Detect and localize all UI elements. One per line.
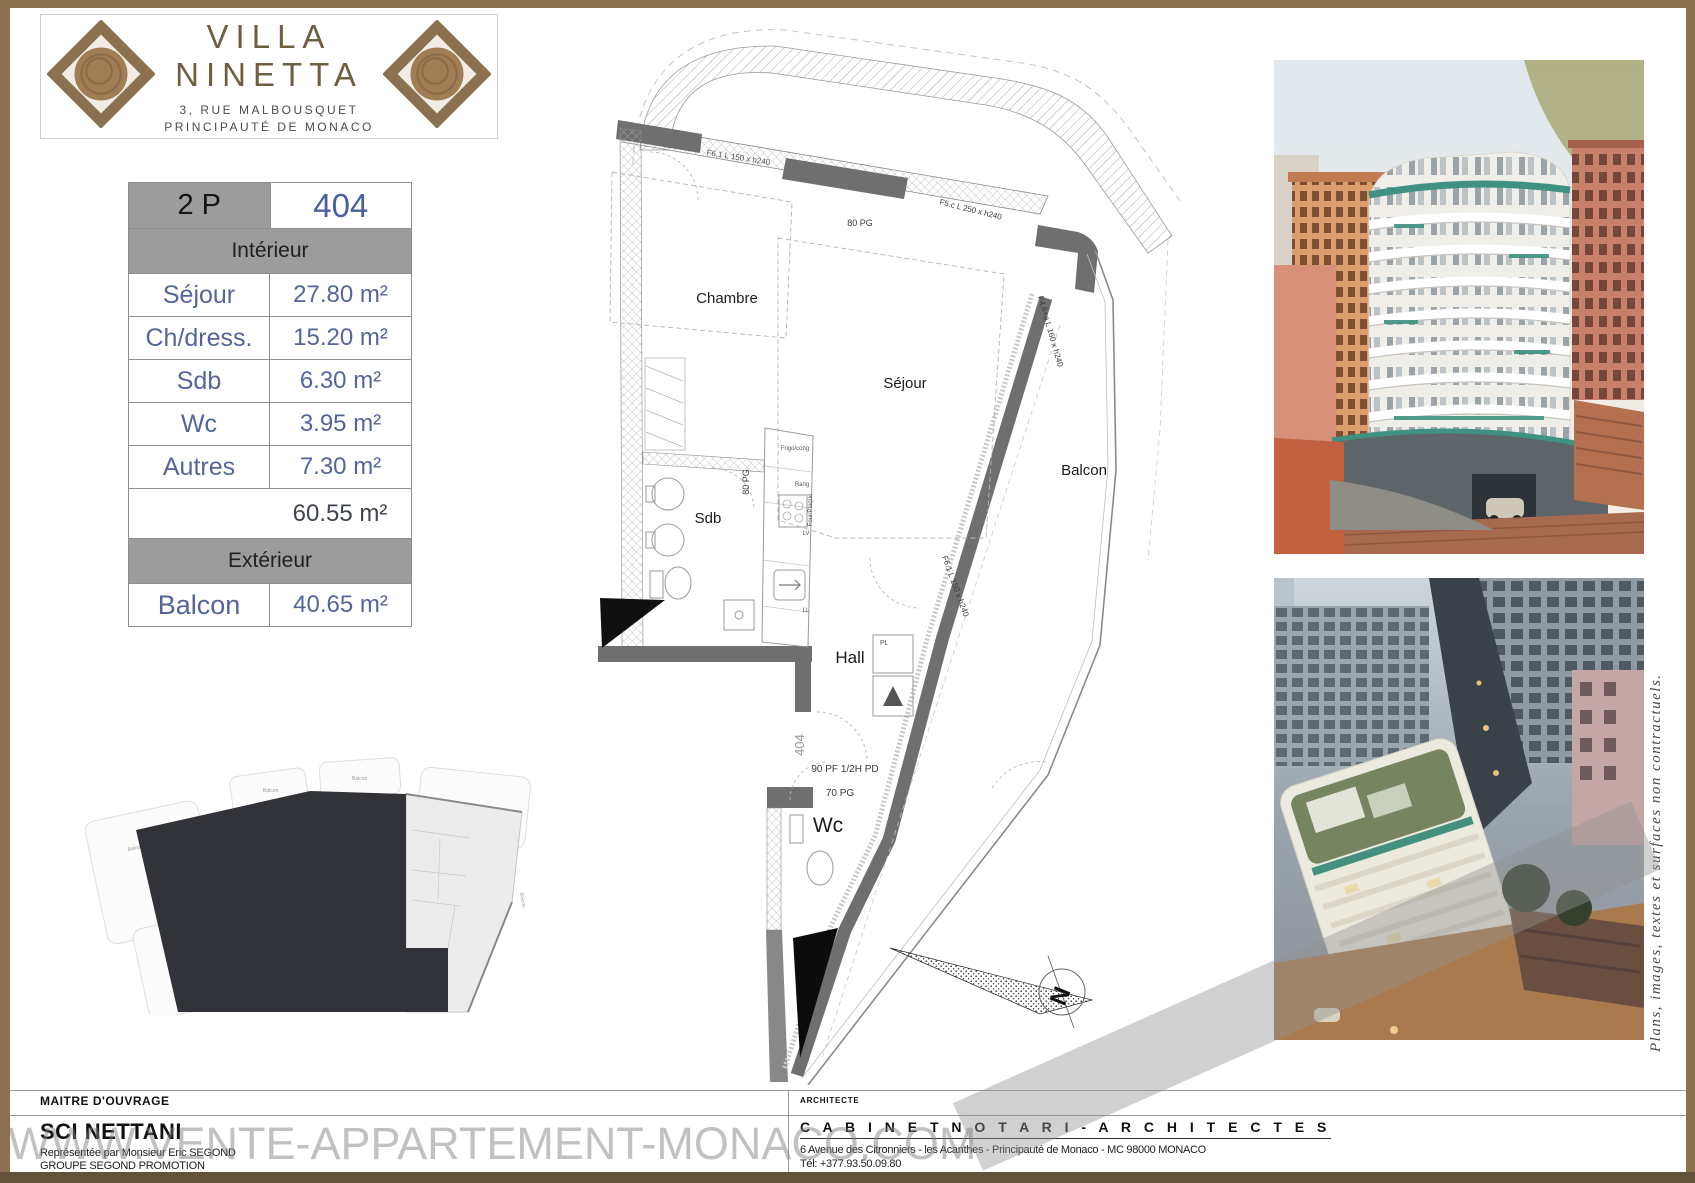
door-arc — [991, 762, 1046, 790]
wall-segment — [598, 646, 812, 662]
residence-title: VILLA NINETTA — [155, 18, 383, 94]
interior-section-header: Intérieur — [128, 229, 412, 274]
architect-section-label: ARCHITECTE — [800, 1096, 1331, 1105]
residence-address-line1: 3, RUE MALBOUSQUET — [155, 102, 383, 119]
room-area: 7.30 m² — [270, 446, 411, 488]
owner-section-label: MAITRE D'OUVRAGE — [40, 1094, 311, 1108]
plan-sheet-page: VILLA NINETTA 3, RUE MALBOUSQUET PRINCIP… — [0, 0, 1695, 1183]
table-row: Autres 7.30 m² — [128, 446, 412, 489]
shower-tray — [724, 600, 754, 630]
annotation-closet: PL — [880, 640, 889, 647]
balcony-dashed-line — [822, 325, 1060, 1058]
hall-closet — [873, 635, 913, 673]
frame-left — [0, 0, 10, 1183]
brand-diamond-icon — [47, 20, 155, 133]
exterior-section-header: Extérieur — [128, 539, 412, 584]
kitchen-strip — [762, 428, 813, 647]
key-plan-other-units — [136, 791, 448, 1012]
room-label: Balcon — [129, 584, 270, 626]
table-row: Sdb 6.30 m² — [128, 360, 412, 403]
table-row: Séjour 27.80 m² — [128, 274, 412, 317]
frame-top — [0, 0, 1695, 8]
room-label: Wc — [129, 403, 270, 445]
wc-basin — [790, 815, 803, 843]
room-label-hall: Hall — [835, 648, 864, 667]
burner — [783, 500, 791, 508]
left-party-wall — [620, 128, 643, 654]
owner-representative: Représentée par Monsieur Eric SEGOND — [40, 1147, 311, 1160]
header-logo-box: VILLA NINETTA 3, RUE MALBOUSQUET PRINCIP… — [40, 14, 498, 139]
room-label-balcon: Balcon — [1061, 462, 1107, 479]
room-label-wc: Wc — [813, 814, 843, 837]
annotation-oven: Four/Plaque — [808, 493, 814, 526]
lot-number: 404 — [271, 183, 412, 228]
door-arc — [650, 152, 698, 200]
table-row: Balcon 40.65 m² — [128, 584, 412, 627]
key-plan-balcon-label: Balcon — [518, 892, 527, 908]
annotation-laundry: LL — [803, 608, 810, 614]
annotation-fridge: Frigo/cong — [781, 446, 809, 452]
annotation-dishwasher: LV — [803, 531, 810, 537]
room-label-sdb: Sdb — [695, 510, 722, 527]
room-area: 40.65 m² — [270, 584, 411, 626]
toilet-tank — [650, 571, 663, 598]
floor-plan: Chambre Séjour Balcon Sdb Hall Wc 80 PG … — [560, 20, 1180, 1085]
footer-vertical-divider — [788, 1090, 789, 1172]
table-row: Wc 3.95 m² — [128, 403, 412, 446]
door-arc — [817, 712, 867, 762]
site-boundary-line — [1148, 240, 1168, 560]
room-label-sejour: Séjour — [883, 375, 926, 392]
building-photo-day — [1274, 60, 1644, 554]
burner — [795, 514, 803, 522]
room-label: Ch/dress. — [129, 317, 270, 359]
key-plan: Balcon Balcon Balcon Balcon — [85, 685, 535, 1015]
footer-divider-line — [10, 1090, 1686, 1091]
interior-total-row: 60.55 m² — [128, 489, 412, 539]
annotation-unit-number: 404 — [792, 734, 807, 756]
room-area: 6.30 m² — [270, 360, 411, 402]
room-area: 27.80 m² — [270, 274, 411, 316]
architect-phone: Tél: +377.93.50.09.80 — [800, 1157, 1331, 1171]
architect-name: C A B I N E T N O T A R I - A R C H I T … — [800, 1119, 1331, 1139]
room-label: Autres — [129, 446, 270, 488]
sink-basin — [652, 524, 684, 556]
tap-fixture — [646, 532, 655, 548]
frame-bottom — [0, 1172, 1695, 1183]
architect-address: 6 Avenue des Citronniers - les Acanthes … — [800, 1143, 1331, 1157]
owner-block: MAITRE D'OUVRAGE SCI NETTANI Représentée… — [40, 1094, 311, 1183]
table-row-header: 2 P 404 — [128, 182, 412, 229]
frame-right — [1686, 0, 1695, 1183]
sink-basin — [652, 478, 684, 510]
dressing-closet — [645, 358, 685, 450]
surface-table: 2 P 404 Intérieur Séjour 27.80 m² Ch/dre… — [128, 182, 412, 627]
annotation-pg80-top: 80 PG — [847, 218, 873, 228]
building-photo-dusk — [1274, 578, 1644, 1040]
architect-block: ARCHITECTE C A B I N E T N O T A R I - A… — [800, 1096, 1331, 1171]
annotation-door-pg70: 70 PG — [826, 788, 855, 799]
annotation-pg80-kitchen: 80 PG — [741, 469, 751, 495]
room-label-chambre: Chambre — [696, 290, 758, 307]
room-label: Séjour — [129, 274, 270, 316]
shower-drain — [735, 611, 743, 619]
annotation-door-pf90: 90 PF 1/2H PD — [811, 764, 878, 775]
toilet-bowl — [665, 567, 691, 599]
key-plan-balcon-label: Balcon — [352, 776, 368, 782]
triangle-marker — [883, 686, 903, 706]
tap-fixture — [646, 486, 655, 502]
annotation-storage: Rang — [795, 482, 809, 488]
interior-total-area: 60.55 m² — [269, 489, 411, 538]
wall-segment — [766, 930, 788, 1082]
wc-toilet — [807, 851, 833, 885]
room-label: Sdb — [129, 360, 270, 402]
stove — [779, 495, 807, 527]
key-plan-balcon-label: Balcon — [263, 788, 279, 794]
disclaimer-vertical-note: Plans, images, textes et surfaces non co… — [1648, 636, 1665, 1052]
wall-segment — [795, 660, 811, 712]
owner-name: SCI NETTANI — [40, 1119, 311, 1145]
room-area: 15.20 m² — [270, 317, 411, 359]
room-area: 3.95 m² — [270, 403, 411, 445]
wc-wall — [767, 808, 781, 930]
brand-diamond-icon — [383, 20, 491, 133]
door-arc — [870, 558, 920, 608]
apartment-type: 2 P — [129, 183, 271, 228]
residence-address-line2: PRINCIPAUTÉ DE MONACO — [155, 119, 383, 136]
burner — [783, 512, 791, 520]
table-row: Ch/dress. 15.20 m² — [128, 317, 412, 360]
closet-rail-lines — [646, 366, 683, 447]
compass-north-arrow: N — [890, 948, 1092, 1028]
faucet-arrow — [779, 580, 800, 590]
sdb-wall — [643, 452, 764, 472]
